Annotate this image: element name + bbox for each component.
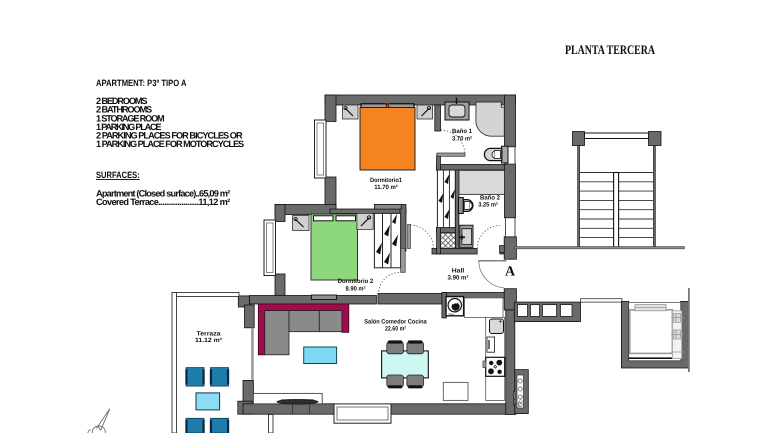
svg-text:11.12 m²: 11.12 m² bbox=[195, 337, 222, 344]
svg-text:SURFACES:: SURFACES: bbox=[96, 170, 140, 180]
svg-text:Hall: Hall bbox=[452, 267, 465, 274]
svg-text:APARTMENT: P3º TIPO A: APARTMENT: P3º TIPO A bbox=[96, 78, 187, 88]
svg-text:22.60 m²: 22.60 m² bbox=[385, 326, 406, 333]
svg-text:Baño 2: Baño 2 bbox=[480, 194, 501, 201]
svg-text:A: A bbox=[505, 265, 516, 280]
svg-text:3.25 m²: 3.25 m² bbox=[478, 201, 498, 208]
svg-text:PLANTA TERCERA: PLANTA TERCERA bbox=[565, 42, 655, 57]
svg-text:Dormitorio1: Dormitorio1 bbox=[370, 177, 402, 184]
svg-text:Covered Terrace...............: Covered Terrace.....................11,1… bbox=[96, 197, 230, 207]
svg-text:1 PARKING PLACE FOR MOTORCYCLE: 1 PARKING PLACE FOR MOTORCYCLES bbox=[96, 139, 244, 149]
svg-text:3.70 m²: 3.70 m² bbox=[452, 135, 472, 142]
svg-text:3.90 m²: 3.90 m² bbox=[448, 275, 469, 282]
svg-text:11.70 m²: 11.70 m² bbox=[374, 184, 398, 191]
svg-text:Salón Comedor Cocina: Salón Comedor Cocina bbox=[364, 318, 427, 325]
svg-text:Baño 1: Baño 1 bbox=[452, 128, 473, 135]
svg-text:Dormitorio 2: Dormitorio 2 bbox=[338, 278, 374, 285]
svg-text:8.90 m²: 8.90 m² bbox=[346, 285, 366, 292]
